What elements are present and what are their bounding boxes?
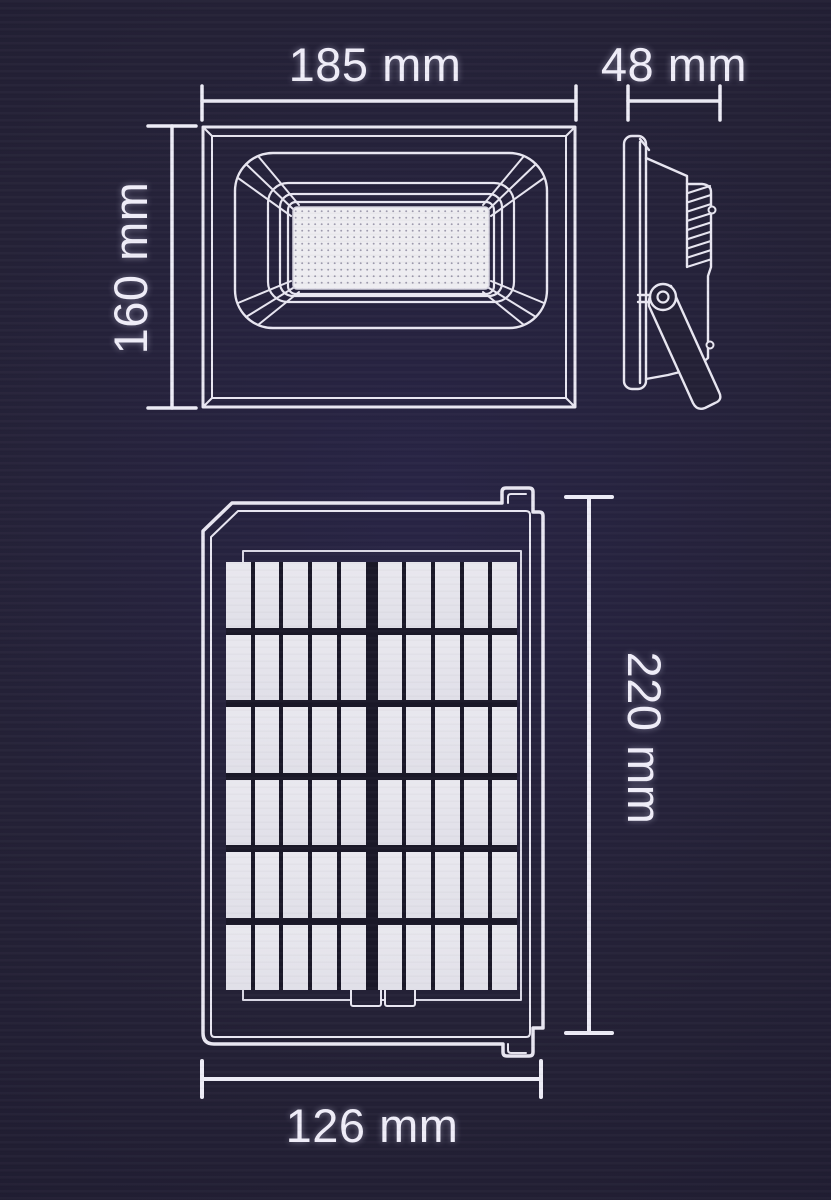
solar-cell [312, 925, 337, 991]
solar-cell [312, 635, 337, 701]
dimension-label-panel-width: 126 mm [222, 1099, 522, 1153]
solar-cell [341, 635, 366, 701]
floodlight-side-view [624, 136, 720, 409]
cell-gap [370, 562, 374, 628]
solar-cell [341, 925, 366, 991]
dimension-label-front-height: 160 mm [104, 118, 158, 418]
solar-cell [226, 925, 251, 991]
cell-gap [370, 635, 374, 701]
dimension-line-220mm [566, 497, 612, 1033]
solar-cell [492, 852, 517, 918]
solar-cell [283, 562, 308, 628]
solar-cell [378, 707, 403, 773]
solar-cell [226, 707, 251, 773]
solar-cell [341, 780, 366, 846]
solar-cell [435, 780, 460, 846]
solar-cell [283, 707, 308, 773]
side-screw-nub-bottom [707, 342, 714, 349]
solar-cell [312, 707, 337, 773]
solar-cell [406, 562, 431, 628]
solar-cell [255, 925, 280, 991]
solar-cell [406, 925, 431, 991]
solar-cell [341, 852, 366, 918]
solar-cell [255, 635, 280, 701]
solar-cell [406, 852, 431, 918]
heatsink-fins [688, 186, 710, 267]
solar-cell [312, 562, 337, 628]
solar-cell [255, 780, 280, 846]
solar-cell [283, 925, 308, 991]
solar-cell [378, 780, 403, 846]
cell-gap [370, 707, 374, 773]
cell-gap [370, 780, 374, 846]
solar-cell [492, 780, 517, 846]
floodlight-front-view [203, 127, 575, 407]
solar-cell [435, 707, 460, 773]
solar-cell [378, 925, 403, 991]
solar-cell [226, 635, 251, 701]
dimension-label-panel-height: 220 mm [617, 588, 671, 888]
solar-cell [226, 562, 251, 628]
solar-cell [312, 852, 337, 918]
solar-cell [464, 707, 489, 773]
solar-cell [492, 562, 517, 628]
dimension-line-126mm [202, 1061, 541, 1097]
solar-cell [378, 562, 403, 628]
diagram-canvas: 185 mm 48 mm 160 mm 220 mm 126 mm [0, 0, 831, 1200]
solar-cell [283, 635, 308, 701]
solar-cell [435, 852, 460, 918]
side-front-slab [624, 136, 646, 389]
solar-cell [341, 562, 366, 628]
solar-cell [435, 635, 460, 701]
solar-cell [406, 707, 431, 773]
solar-cell [255, 707, 280, 773]
dimension-label-front-width: 185 mm [225, 38, 525, 92]
solar-cell [406, 635, 431, 701]
solar-cell [464, 562, 489, 628]
solar-cell [464, 925, 489, 991]
solar-cell [492, 925, 517, 991]
solar-cell [255, 562, 280, 628]
dimension-label-side-depth: 48 mm [524, 38, 824, 92]
solar-cell [492, 707, 517, 773]
cell-gap [370, 925, 374, 991]
solar-cell [255, 852, 280, 918]
bracket-pivot [650, 284, 676, 310]
led-array-panel [293, 207, 489, 289]
solar-cell [492, 635, 517, 701]
solar-cell [283, 852, 308, 918]
solar-cell [464, 780, 489, 846]
solar-cell [435, 562, 460, 628]
solar-cell [226, 852, 251, 918]
solar-cell [435, 925, 460, 991]
solar-cell [464, 852, 489, 918]
solar-cell [378, 852, 403, 918]
solar-cell-grid [226, 562, 517, 990]
solar-cell [312, 780, 337, 846]
solar-cell [378, 635, 403, 701]
cell-gap [370, 852, 374, 918]
solar-cell [226, 780, 251, 846]
side-screw-nub-top [709, 207, 716, 214]
solar-cell [283, 780, 308, 846]
solar-cell [464, 635, 489, 701]
solar-cell [406, 780, 431, 846]
solar-cell [341, 707, 366, 773]
